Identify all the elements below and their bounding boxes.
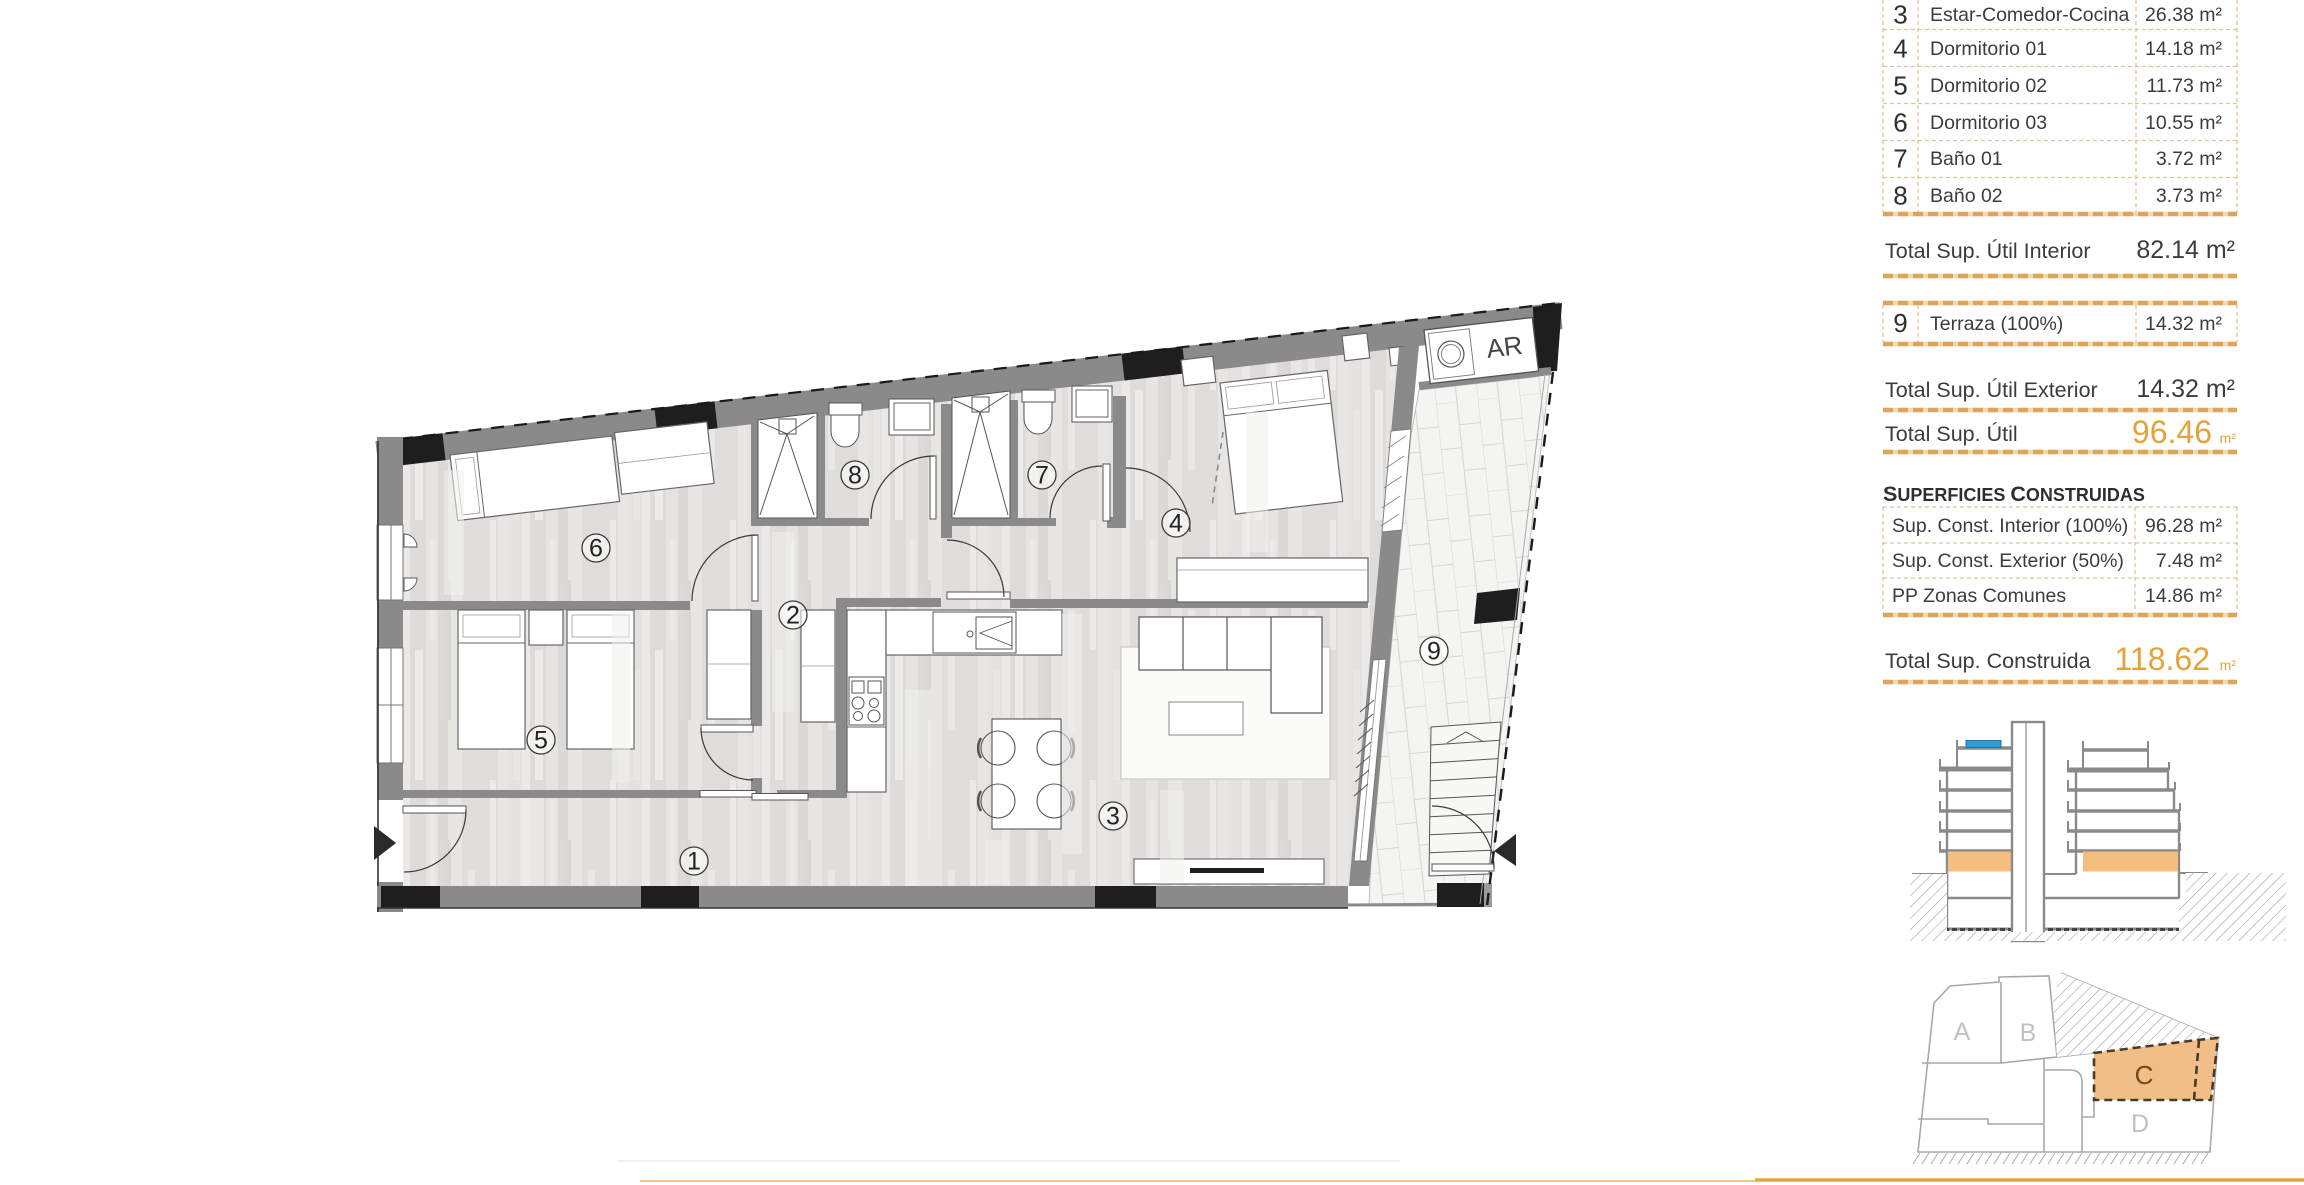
svg-text:14.18 m²: 14.18 m²	[2145, 38, 2222, 60]
svg-text:Total Sup. Útil Exterior: Total Sup. Útil Exterior	[1885, 377, 2098, 402]
svg-text:6: 6	[1893, 108, 1907, 138]
svg-text:5: 5	[1893, 71, 1907, 101]
svg-text:7: 7	[1893, 144, 1907, 174]
svg-text:4: 4	[1893, 34, 1907, 64]
svg-text:118.62: 118.62	[2115, 641, 2211, 677]
svg-text:14.32 m²: 14.32 m²	[2145, 313, 2222, 335]
svg-text:9: 9	[1893, 308, 1907, 338]
svg-text:m²: m²	[2220, 657, 2237, 673]
svg-text:9: 9	[1427, 638, 1441, 666]
svg-text:A: A	[1954, 1018, 1971, 1046]
svg-text:Dormitorio 02: Dormitorio 02	[1930, 75, 2047, 97]
svg-text:Dormitorio 03: Dormitorio 03	[1930, 112, 2047, 134]
svg-text:11.73 m²: 11.73 m²	[2146, 75, 2222, 97]
svg-text:3: 3	[1106, 803, 1120, 831]
svg-text:Total Sup. Útil: Total Sup. Útil	[1885, 421, 2018, 446]
svg-text:4: 4	[1169, 510, 1183, 538]
svg-text:82.14 m²: 82.14 m²	[2136, 236, 2235, 264]
svg-text:96.46: 96.46	[2132, 414, 2212, 450]
svg-text:Total Sup. Construida: Total Sup. Construida	[1885, 649, 2091, 673]
svg-text:Total Sup. Útil Interior: Total Sup. Útil Interior	[1885, 238, 2091, 263]
svg-text:96.28 m²: 96.28 m²	[2145, 515, 2222, 537]
svg-text:26.38 m²: 26.38 m²	[2145, 4, 2222, 26]
svg-text:D: D	[2131, 1110, 2149, 1138]
svg-text:8: 8	[848, 462, 862, 490]
svg-text:14.32 m²: 14.32 m²	[2136, 375, 2235, 403]
svg-text:3.73 m²: 3.73 m²	[2156, 185, 2223, 207]
svg-text:8: 8	[1893, 181, 1907, 211]
svg-text:m²: m²	[2220, 430, 2237, 446]
svg-text:Estar-Comedor-Cocina: Estar-Comedor-Cocina	[1930, 4, 2130, 26]
svg-text:1: 1	[687, 848, 701, 876]
svg-text:Baño 01: Baño 01	[1930, 148, 2003, 170]
svg-text:5: 5	[534, 727, 548, 755]
svg-text:B: B	[2020, 1019, 2037, 1047]
svg-text:Dormitorio 01: Dormitorio 01	[1930, 38, 2047, 60]
svg-text:2: 2	[786, 602, 800, 630]
svg-text:Sup. Const. Interior (100%): Sup. Const. Interior (100%)	[1892, 515, 2128, 537]
svg-text:PP Zonas Comunes: PP Zonas Comunes	[1892, 585, 2066, 607]
svg-text:C: C	[2135, 1060, 2154, 1090]
svg-text:AR: AR	[1485, 330, 1524, 364]
svg-text:7.48 m²: 7.48 m²	[2156, 550, 2223, 572]
svg-text:7: 7	[1035, 462, 1049, 490]
svg-text:3: 3	[1893, 0, 1907, 30]
svg-text:14.86 m²: 14.86 m²	[2145, 585, 2222, 607]
svg-text:SUPERFICIES CONSTRUIDAS: SUPERFICIES CONSTRUIDAS	[1883, 482, 2145, 506]
svg-text:6: 6	[589, 535, 603, 563]
svg-text:Baño 02: Baño 02	[1930, 185, 2003, 207]
svg-text:3.72 m²: 3.72 m²	[2156, 148, 2223, 170]
svg-text:Sup. Const. Exterior (50%): Sup. Const. Exterior (50%)	[1892, 550, 2124, 572]
svg-text:10.55 m²: 10.55 m²	[2145, 112, 2222, 134]
svg-text:Terraza (100%): Terraza (100%)	[1930, 313, 2063, 335]
